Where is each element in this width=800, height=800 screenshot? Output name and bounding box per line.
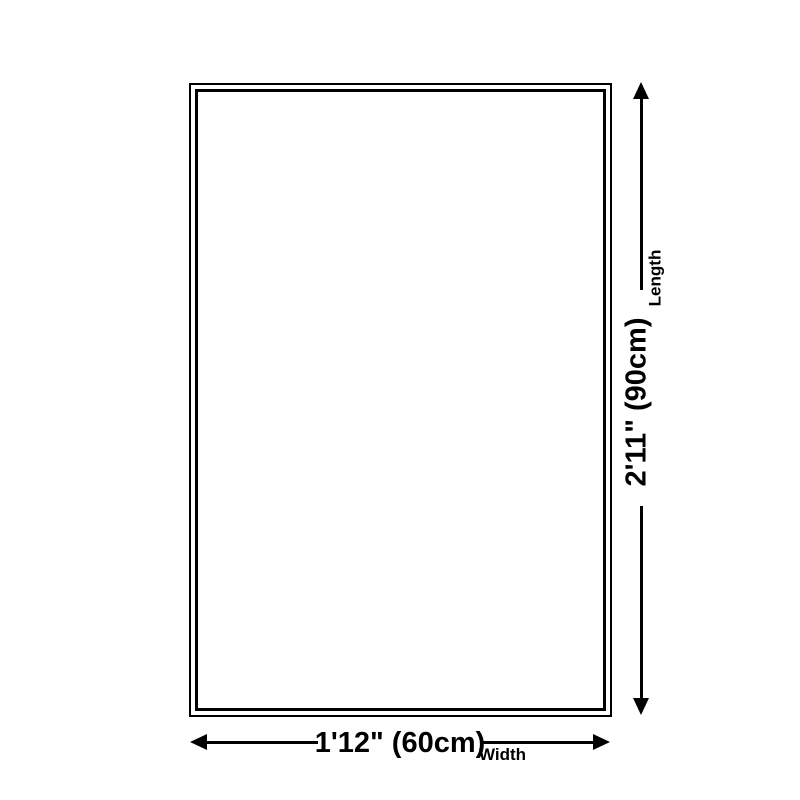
arrow-right-icon: [593, 734, 610, 750]
length-value: 2'11" (90cm): [623, 318, 652, 487]
rug-outline-inner: [195, 89, 606, 711]
width-label: Width: [479, 746, 526, 763]
width-arrow-line-right: [482, 741, 595, 744]
length-label: Length: [647, 250, 664, 307]
length-arrow-line-top: [640, 97, 643, 290]
width-value: 1'12" (60cm): [300, 729, 500, 758]
length-arrow-line-bottom: [640, 506, 643, 701]
dimension-diagram: Length 2'11" (90cm) 1'12" (60cm) Width: [0, 0, 800, 800]
arrow-down-icon: [633, 698, 649, 715]
rug-outline-outer: [189, 83, 612, 717]
